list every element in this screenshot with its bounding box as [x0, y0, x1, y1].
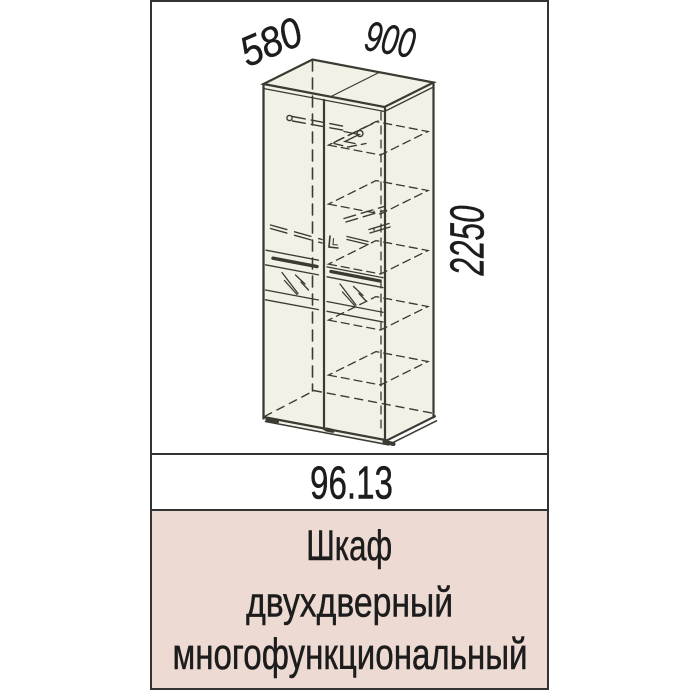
svg-text:2250: 2250: [441, 205, 494, 276]
svg-text:Шкаф: Шкаф: [306, 523, 392, 570]
svg-text:96.13: 96.13: [310, 457, 393, 509]
svg-text:многофункциональный: многофункциональный: [173, 631, 528, 679]
svg-text:900: 900: [361, 12, 419, 67]
svg-text:двухдверный: двухдверный: [246, 579, 453, 626]
